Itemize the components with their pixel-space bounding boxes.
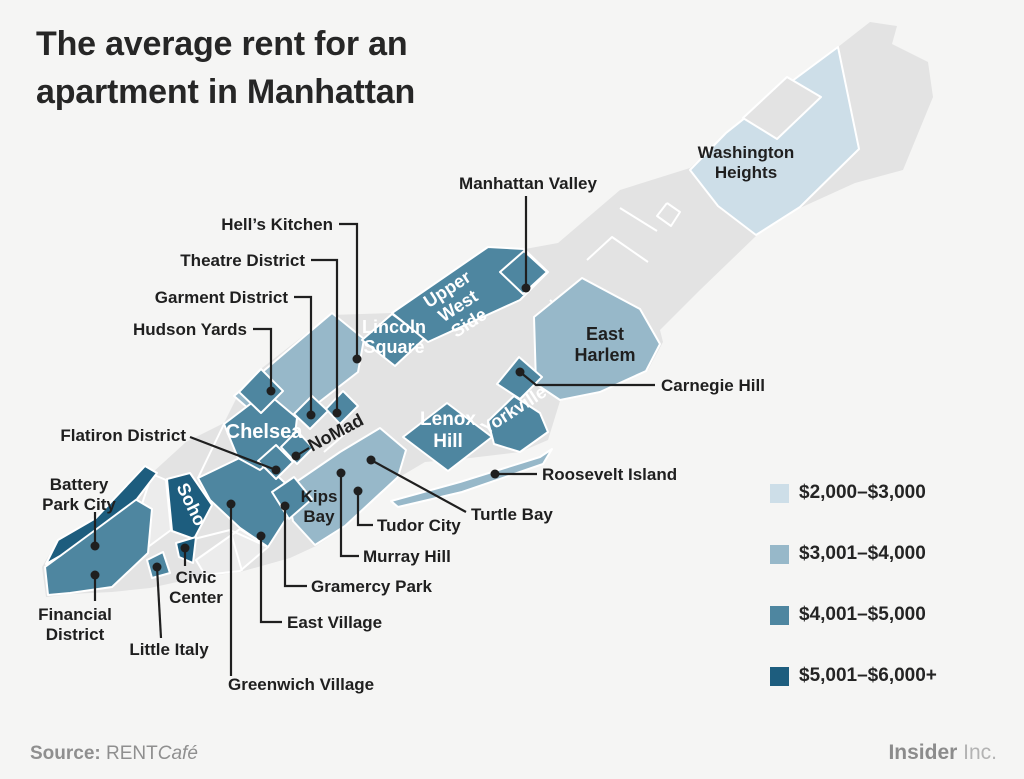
callout-label-hells-kitchen: Hell’s Kitchen [221,215,333,234]
callout-dot-carnegie-hill [516,368,525,377]
callout-dot-nomad [292,452,301,461]
callout-label-roosevelt-island: Roosevelt Island [542,465,677,484]
legend-row: $4,001–$5,000 [770,605,937,625]
callout-dot-flatiron-district [272,466,281,475]
callout-dot-tudor-city [354,487,363,496]
map-label-kips-bay: KipsBay [301,487,338,526]
source-name-italic: Café [158,743,198,764]
legend-swatch-tier3 [770,606,789,625]
callout-label-manhattan-valley: Manhattan Valley [459,174,597,193]
callout-label-theatre-district: Theatre District [180,251,305,270]
legend-row: $3,001–$4,000 [770,544,937,564]
callout-dot-theatre-district [333,409,342,418]
brand-name: Insider [888,741,957,764]
callout-label-hudson-yards: Hudson Yards [133,320,247,339]
callout-label-battery-park-city: BatteryPark City [42,475,116,514]
brand-logo: Insider Inc. [888,741,997,765]
callout-label-financial-district: FinancialDistrict [38,605,112,644]
callout-dot-turtle-bay [367,456,376,465]
legend-row: $5,001–$6,000+ [770,666,937,686]
callout-label-turtle-bay: Turtle Bay [471,505,553,524]
callout-label-civic-center: CivicCenter [169,568,223,607]
callout-dot-greenwich-village [227,500,236,509]
callout-label-gramercy-park: Gramercy Park [311,577,433,596]
legend-swatch-tier1 [770,484,789,503]
callout-label-flatiron-district: Flatiron District [60,426,186,445]
legend-row: $2,000–$3,000 [770,483,937,503]
legend-swatch-tier2 [770,545,789,564]
callout-label-greenwich-village: Greenwich Village [228,675,374,694]
legend: $2,000–$3,000 $3,001–$4,000 $4,001–$5,00… [770,483,937,727]
brand-suffix: Inc. [963,741,997,764]
callout-dot-garment-district [307,411,316,420]
source-prefix: Source: [30,743,101,764]
source-attribution: Source: RENTCafé [30,743,198,765]
callout-dot-financial-district [91,571,100,580]
callout-label-murray-hill: Murray Hill [363,547,451,566]
callout-dot-hudson-yards [267,387,276,396]
callout-dot-little-italy [153,563,162,572]
map-label-chelsea: Chelsea [226,421,304,443]
legend-label-tier4: $5,001–$6,000+ [799,665,937,687]
source-name: RENT [106,743,158,764]
callout-label-tudor-city: Tudor City [377,516,461,535]
callout-dot-manhattan-valley [522,284,531,293]
callout-dot-murray-hill [337,469,346,478]
callout-label-carnegie-hill: Carnegie Hill [661,376,765,395]
callout-dot-civic-center [181,544,190,553]
callout-dot-battery-park-city [91,542,100,551]
callout-label-little-italy: Little Italy [129,640,209,659]
legend-label-tier1: $2,000–$3,000 [799,482,926,504]
legend-label-tier2: $3,001–$4,000 [799,543,926,565]
callout-dot-hells-kitchen [353,355,362,364]
callout-dot-gramercy-park [281,502,290,511]
callout-label-east-village: East Village [287,613,382,632]
legend-label-tier3: $4,001–$5,000 [799,604,926,626]
callout-dot-roosevelt-island [491,470,500,479]
legend-swatch-tier4 [770,667,789,686]
map-label-lincoln-square: LincolnSquare [362,317,426,357]
callout-dot-east-village [257,532,266,541]
callout-label-garment-district: Garment District [155,288,289,307]
infographic: The average rent for an apartment in Man… [0,0,1024,779]
